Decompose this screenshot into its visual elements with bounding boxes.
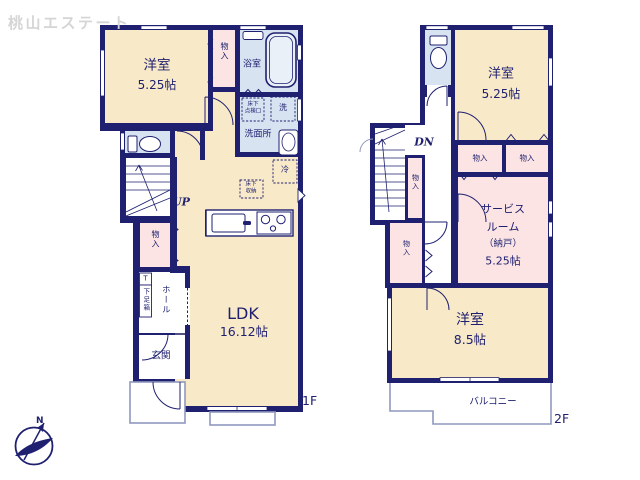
floor2-plan bbox=[360, 25, 553, 424]
room-2f-hallway bbox=[425, 97, 451, 283]
bathtub bbox=[266, 33, 296, 87]
room-1f-western bbox=[105, 30, 208, 123]
room-label-2f-western-large: 洋室 bbox=[456, 313, 484, 327]
label-2f-closet-left: 物入 bbox=[473, 154, 488, 162]
label-underfloor-storage-1: 床下 bbox=[245, 182, 256, 188]
label-stairs-dn: DN bbox=[414, 137, 434, 148]
kitchen-counter bbox=[206, 210, 293, 236]
label-bathroom: 浴室 bbox=[243, 61, 261, 70]
watermark-text: 桃山エステート bbox=[8, 12, 131, 33]
compass-north-label: N bbox=[36, 417, 44, 426]
label-stairs-up: UP bbox=[172, 197, 190, 208]
compass-north-icon bbox=[15, 423, 53, 465]
room-size-1f-western: 5.25帖 bbox=[138, 79, 177, 91]
room-1f-ldk bbox=[175, 157, 298, 406]
room-label-2f-western-small: 洋室 bbox=[488, 68, 514, 81]
floor1-plan bbox=[100, 25, 305, 425]
label-2f-closet-stairs: 物入 bbox=[412, 174, 419, 191]
label-shoe-box: 下足箱 bbox=[142, 288, 149, 312]
label-1f-closet-top: 物入 bbox=[220, 42, 228, 61]
room-label-ldk: LDK bbox=[227, 306, 259, 322]
label-1f-closet-mid: 物入 bbox=[151, 230, 159, 249]
label-underfloor-access-2: 点検口 bbox=[245, 109, 262, 115]
label-balcony: バルコニー bbox=[469, 397, 516, 407]
label-hall: ホール bbox=[161, 285, 170, 315]
label-underfloor-storage-2: 収納 bbox=[245, 189, 256, 195]
label-2f-closet-right: 物入 bbox=[520, 154, 535, 162]
label-underfloor-access-1: 床下 bbox=[247, 102, 258, 108]
label-2f-closet-lower: 物入 bbox=[403, 240, 410, 257]
terrace-step bbox=[210, 412, 275, 425]
room-size-ldk: 16.12帖 bbox=[220, 326, 268, 339]
label-washer: 洗 bbox=[279, 104, 287, 112]
room-size-2f-western-large: 8.5帖 bbox=[454, 334, 486, 347]
washbasin bbox=[279, 130, 298, 155]
entrance-porch bbox=[130, 382, 185, 423]
room-2f-western-small bbox=[455, 30, 548, 140]
floor2-label: 2F bbox=[554, 413, 569, 426]
toilet-2f bbox=[430, 36, 447, 69]
floorplan-drawing bbox=[0, 0, 640, 480]
toilet-1f bbox=[128, 136, 161, 152]
label-fridge: 冷 bbox=[281, 166, 289, 174]
label-service-room-4: 5.25帖 bbox=[485, 256, 521, 267]
label-shoe-t: T bbox=[143, 276, 147, 283]
bath-counter bbox=[243, 32, 263, 40]
floorplan-page: 桃山エステート 洋室 5.25帖 物入 浴室 床下 点検口 洗 洗面所 冷 床下… bbox=[0, 0, 640, 480]
label-washroom: 洗面所 bbox=[244, 131, 271, 140]
floor1-label: 1F bbox=[302, 395, 317, 408]
label-service-room-1: サービス bbox=[481, 204, 525, 215]
label-service-room-3: （納戸） bbox=[484, 239, 522, 249]
label-service-room-2: ルーム bbox=[487, 222, 520, 233]
label-entrance: 玄関 bbox=[151, 351, 170, 361]
room-size-2f-western-small: 5.25帖 bbox=[482, 88, 521, 100]
room-label-1f-western: 洋室 bbox=[144, 59, 171, 73]
